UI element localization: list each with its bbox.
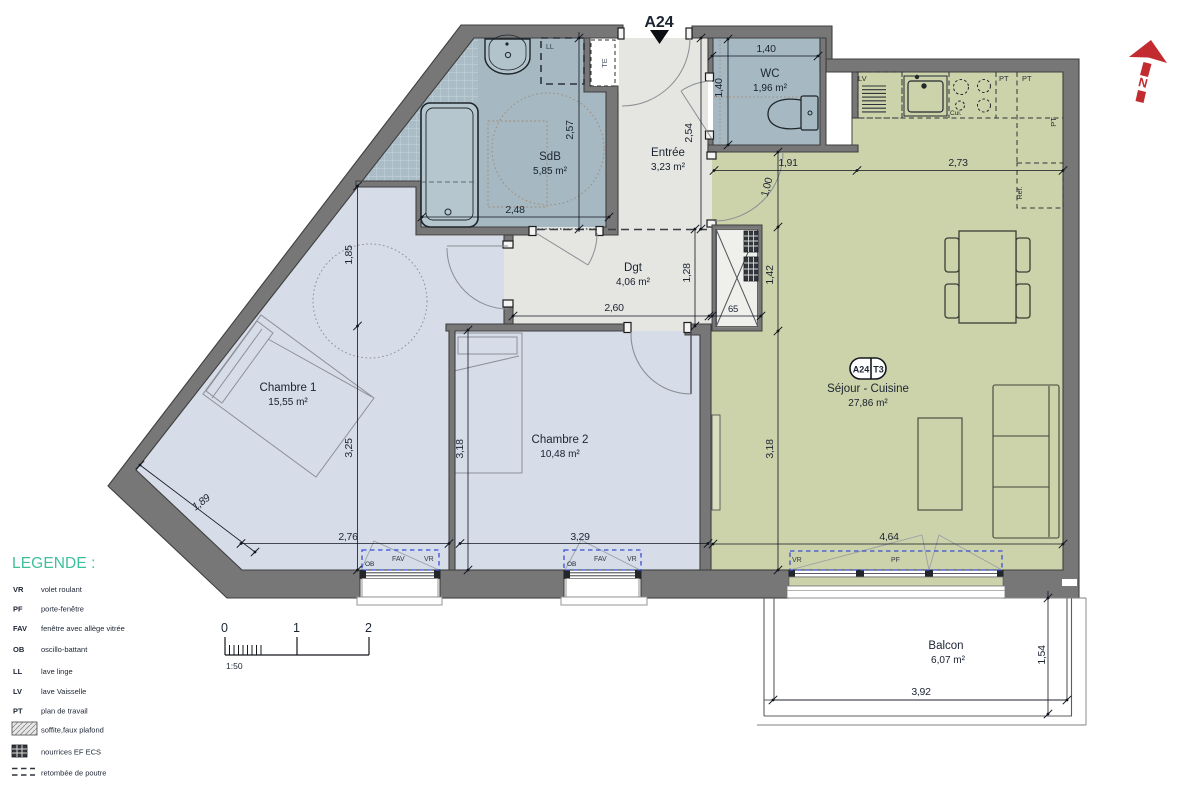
svg-text:1,54: 1,54 [1036, 645, 1048, 665]
svg-text:Cui.: Cui. [950, 110, 962, 117]
svg-text:65: 65 [728, 304, 738, 315]
svg-text:FAV: FAV [392, 556, 405, 563]
svg-text:Chambre 1: Chambre 1 [260, 382, 317, 394]
svg-text:5,85 m²: 5,85 m² [533, 166, 568, 177]
svg-text:3,18: 3,18 [764, 439, 776, 459]
svg-text:VR: VR [792, 557, 802, 564]
svg-text:A24: A24 [644, 14, 673, 31]
svg-text:retombée de poutre: retombée de poutre [41, 769, 106, 778]
svg-text:VR: VR [424, 556, 434, 563]
svg-text:0: 0 [221, 621, 228, 635]
svg-text:LL: LL [13, 667, 23, 676]
svg-text:soffite,faux plafond: soffite,faux plafond [41, 726, 104, 735]
svg-text:lave Vaisselle: lave Vaisselle [41, 687, 86, 696]
svg-text:OB: OB [365, 561, 374, 568]
svg-text:plan de travail: plan de travail [41, 707, 88, 716]
svg-text:3,25: 3,25 [343, 438, 355, 458]
svg-text:3,92: 3,92 [911, 686, 931, 698]
svg-text:1: 1 [293, 621, 300, 635]
svg-text:volet roulant: volet roulant [41, 585, 83, 594]
svg-text:LEGENDE :: LEGENDE : [12, 555, 96, 572]
svg-text:WC: WC [760, 68, 779, 80]
svg-text:fenêtre avec allège vitrée: fenêtre avec allège vitrée [41, 624, 125, 633]
svg-text:VR: VR [13, 585, 24, 594]
svg-text:27,86 m²: 27,86 m² [848, 398, 888, 409]
svg-text:2,54: 2,54 [683, 123, 695, 143]
svg-text:LL: LL [546, 44, 554, 51]
svg-text:4,64: 4,64 [879, 531, 899, 543]
svg-text:FAV: FAV [594, 556, 607, 563]
svg-text:A24: A24 [853, 365, 870, 375]
svg-text:PT: PT [1049, 117, 1058, 127]
svg-text:TE: TE [600, 58, 609, 68]
svg-text:Entrée: Entrée [651, 147, 685, 159]
svg-text:15,55 m²: 15,55 m² [268, 397, 308, 408]
svg-text:OB: OB [567, 561, 576, 568]
svg-text:T3: T3 [873, 365, 884, 375]
svg-text:1,28: 1,28 [681, 263, 693, 283]
svg-text:nourrices EF ECS: nourrices EF ECS [41, 748, 101, 757]
svg-text:1,40: 1,40 [713, 78, 725, 98]
svg-text:3,18: 3,18 [454, 439, 466, 459]
svg-text:PF: PF [13, 605, 23, 614]
svg-text:Ref.: Ref. [1017, 187, 1024, 200]
svg-text:3,29: 3,29 [570, 531, 590, 543]
svg-text:1,40: 1,40 [756, 43, 776, 55]
svg-text:oscillo-battant: oscillo-battant [41, 645, 88, 654]
svg-text:2,57: 2,57 [564, 120, 576, 140]
svg-text:LV: LV [13, 687, 22, 696]
svg-text:FAV: FAV [13, 624, 27, 633]
svg-text:Dgt: Dgt [624, 262, 643, 274]
svg-text:PF: PF [891, 557, 900, 564]
svg-text:VR: VR [627, 556, 637, 563]
svg-text:lave linge: lave linge [41, 667, 73, 676]
svg-text:1,85: 1,85 [343, 245, 355, 265]
svg-text:6,07 m²: 6,07 m² [931, 655, 966, 666]
svg-text:porte-fenêtre: porte-fenêtre [41, 605, 84, 614]
svg-text:1,91: 1,91 [778, 157, 798, 169]
svg-text:2: 2 [365, 621, 372, 635]
svg-text:PT: PT [999, 74, 1009, 83]
svg-text:Séjour - Cuisine: Séjour - Cuisine [827, 383, 909, 395]
svg-text:2,73: 2,73 [948, 157, 968, 169]
svg-text:2,60: 2,60 [604, 302, 624, 314]
svg-text:Balcon: Balcon [928, 640, 963, 652]
svg-text:2,48: 2,48 [505, 204, 525, 216]
svg-text:PT: PT [13, 707, 23, 716]
svg-text:PT: PT [1022, 74, 1032, 83]
svg-text:1:50: 1:50 [226, 661, 243, 671]
svg-text:4,06 m²: 4,06 m² [616, 277, 651, 288]
svg-text:OB: OB [13, 645, 25, 654]
svg-text:2,76: 2,76 [338, 531, 358, 543]
svg-text:SdB: SdB [539, 151, 561, 163]
svg-text:1,96 m²: 1,96 m² [753, 83, 788, 94]
svg-text:10,48 m²: 10,48 m² [540, 449, 580, 460]
svg-text:LV: LV [858, 74, 867, 83]
svg-text:3,23 m²: 3,23 m² [651, 162, 686, 173]
svg-text:1,42: 1,42 [764, 265, 776, 285]
svg-text:Chambre 2: Chambre 2 [532, 434, 589, 446]
